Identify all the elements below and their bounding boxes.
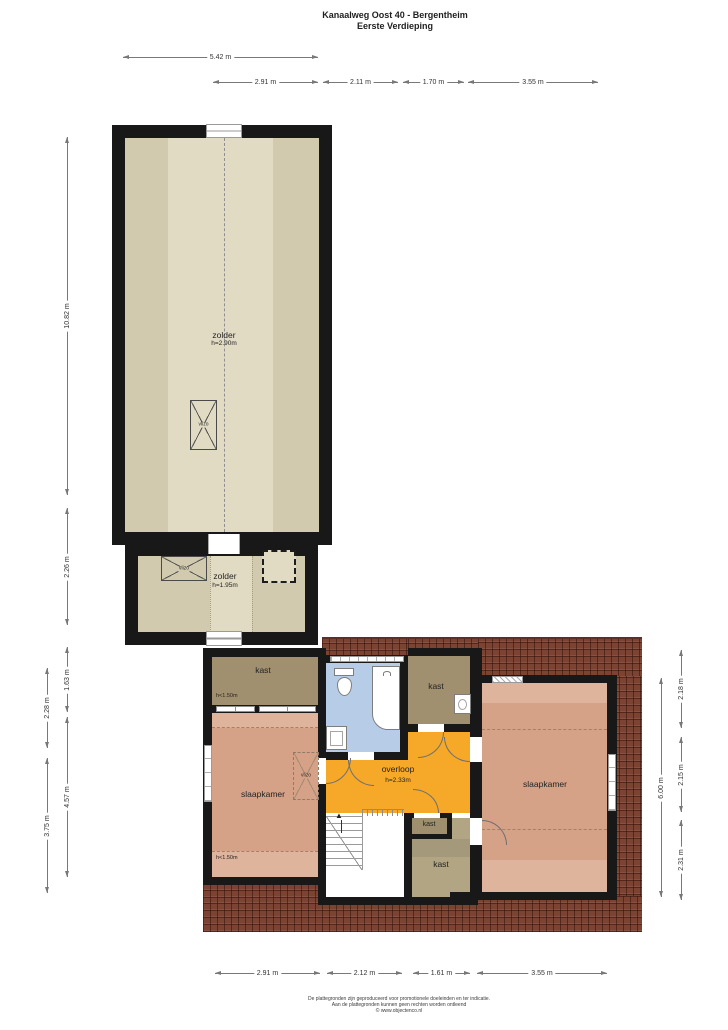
dimension-line: 1.61 m (413, 973, 470, 974)
staircase-edge (362, 814, 363, 870)
door-opening (418, 724, 444, 732)
dimension-label: 6.00 m (658, 774, 666, 801)
dimension-label: 2.15 m (678, 761, 686, 788)
attic-lower-slope-line (210, 556, 211, 632)
dimension-label: 3.55 m (519, 79, 546, 87)
stair-opening-dashed (262, 550, 296, 583)
room-label-kast-n: kast (428, 682, 444, 691)
vlizo-hatch-icon: vlizo (293, 752, 319, 800)
dimension-label: 2.18 m (678, 675, 686, 702)
dimension-label: 2.26 m (64, 553, 72, 580)
vlizo-label: vlizo (178, 566, 190, 571)
dimension-line: 2.18 m (681, 650, 682, 728)
room-label-kast-mid: kast (423, 821, 436, 828)
title-floor: Eerste Verdieping (255, 21, 535, 32)
closet-door (259, 706, 316, 712)
vlizo-label: vlizo (197, 423, 209, 428)
copyright: © www.objectenco.nl (244, 1008, 554, 1014)
dimension-label: 1.61 m (428, 970, 455, 978)
boiler-icon (458, 699, 467, 710)
attic-bottom-window (206, 631, 242, 646)
closet-door (216, 706, 255, 712)
room-kast-s (452, 818, 470, 839)
door-opening (318, 758, 326, 784)
dimension-label: 10.82 m (64, 300, 72, 331)
slope-band (482, 683, 607, 703)
dimension-label: 2.28 m (44, 694, 52, 721)
bedroom-right-top-window (492, 676, 523, 683)
room-height-zolder-upper: h=2.90m (211, 341, 236, 348)
wall (203, 877, 326, 885)
room-height-overloop: h=2.33m (385, 778, 410, 785)
bedroom-left-side-window (204, 745, 212, 802)
wall (203, 648, 326, 657)
door-opening (470, 818, 482, 845)
dimension-line: 2.11 m (323, 82, 398, 83)
staircase-treads (326, 816, 362, 870)
bathroom-window (330, 656, 404, 662)
room-height-kast-nw: h<1.50m (216, 694, 238, 700)
dimension-label: 4.57 m (64, 783, 72, 810)
dimension-label: 2.91 m (252, 79, 279, 87)
dimension-label: 3.75 m (44, 812, 52, 839)
dimension-line: 1.70 m (403, 82, 464, 83)
room-label-kast-nw: kast (255, 666, 271, 675)
attic-lower-slope-line (252, 556, 253, 632)
dimension-label: 2.31 m (678, 846, 686, 873)
vlizo-hatch-icon: vlizo (161, 556, 207, 581)
slope-band (482, 860, 607, 892)
dimension-line: 2.31 m (681, 820, 682, 900)
vlizo-hatch-icon: vlizo (190, 400, 217, 450)
attic-passage-opening (208, 534, 240, 554)
room-height-slaapkamer-left: h<1.50m (216, 856, 238, 862)
dimension-line: 3.55 m (468, 82, 598, 83)
dimension-line: 2.15 m (681, 737, 682, 812)
vlizo-label: vlizo (300, 774, 312, 779)
wall (400, 655, 408, 760)
room-label-kast-s: kast (433, 860, 449, 869)
stair-direction-arrow: ▲ (335, 811, 343, 820)
door-opening (348, 752, 374, 760)
toilet-icon (334, 668, 354, 676)
dimension-line: 5.42 m (123, 57, 318, 58)
dimension-line: 4.57 m (67, 717, 68, 877)
shower-head-icon (383, 671, 391, 676)
wall (404, 834, 452, 839)
dimension-line: 2.28 m (47, 668, 48, 748)
dimension-label: 2.12 m (351, 970, 378, 978)
dimension-label: 1.63 m (64, 666, 72, 693)
dimension-label: 2.91 m (254, 970, 281, 978)
bedroom-right-side-window (608, 754, 616, 811)
dimension-line: 2.12 m (327, 973, 402, 974)
disclaimer: De plattegronden zijn geproduceerd voor … (244, 996, 554, 1014)
dimension-label: 1.70 m (420, 79, 447, 87)
room-label-zolder-lower: zolder (213, 572, 236, 581)
dimension-label: 2.11 m (347, 79, 374, 87)
wall (470, 648, 482, 900)
roof-texture (203, 885, 326, 898)
kast-s-shade (412, 839, 470, 857)
door-opening (414, 813, 440, 818)
sink-basin-icon (330, 731, 343, 746)
attic-top-window (206, 124, 242, 138)
dimension-line: 2.91 m (215, 973, 320, 974)
stair-break-line (362, 809, 404, 816)
room-label-slaapkamer-right: slaapkamer (523, 780, 567, 789)
attic-slope-band-right (273, 138, 319, 532)
floorplan-canvas: Kanaalweg Oost 40 - Bergentheim Eerste V… (0, 0, 728, 1030)
room-label-slaapkamer-left: slaapkamer (241, 790, 285, 799)
ceiling-height-line (482, 729, 607, 730)
dimension-label: 3.55 m (528, 970, 555, 978)
slope-band (212, 713, 318, 728)
room-height-zolder-lower: h=1.95m (212, 583, 237, 590)
dimension-line: 6.00 m (661, 678, 662, 897)
dimension-line: 3.75 m (47, 758, 48, 893)
door-opening (470, 737, 482, 762)
page-title: Kanaalweg Oost 40 - Bergentheim Eerste V… (255, 10, 535, 32)
wall (408, 648, 478, 656)
wall (318, 897, 478, 905)
roof-texture (478, 637, 642, 678)
wall (404, 813, 412, 905)
room-label-overloop: overloop (382, 765, 415, 774)
dimension-line: 10.82 m (67, 137, 68, 495)
dimension-label: 5.42 m (207, 54, 234, 62)
dimension-line: 2.91 m (213, 82, 318, 83)
dimension-line: 3.55 m (477, 973, 607, 974)
title-address: Kanaalweg Oost 40 - Bergentheim (255, 10, 535, 21)
room-label-zolder-upper: zolder (212, 331, 235, 340)
dimension-line: 1.63 m (67, 647, 68, 712)
attic-slope-band-left (125, 138, 168, 532)
dimension-line: 2.26 m (67, 508, 68, 625)
stair-direction-stem (341, 820, 342, 833)
